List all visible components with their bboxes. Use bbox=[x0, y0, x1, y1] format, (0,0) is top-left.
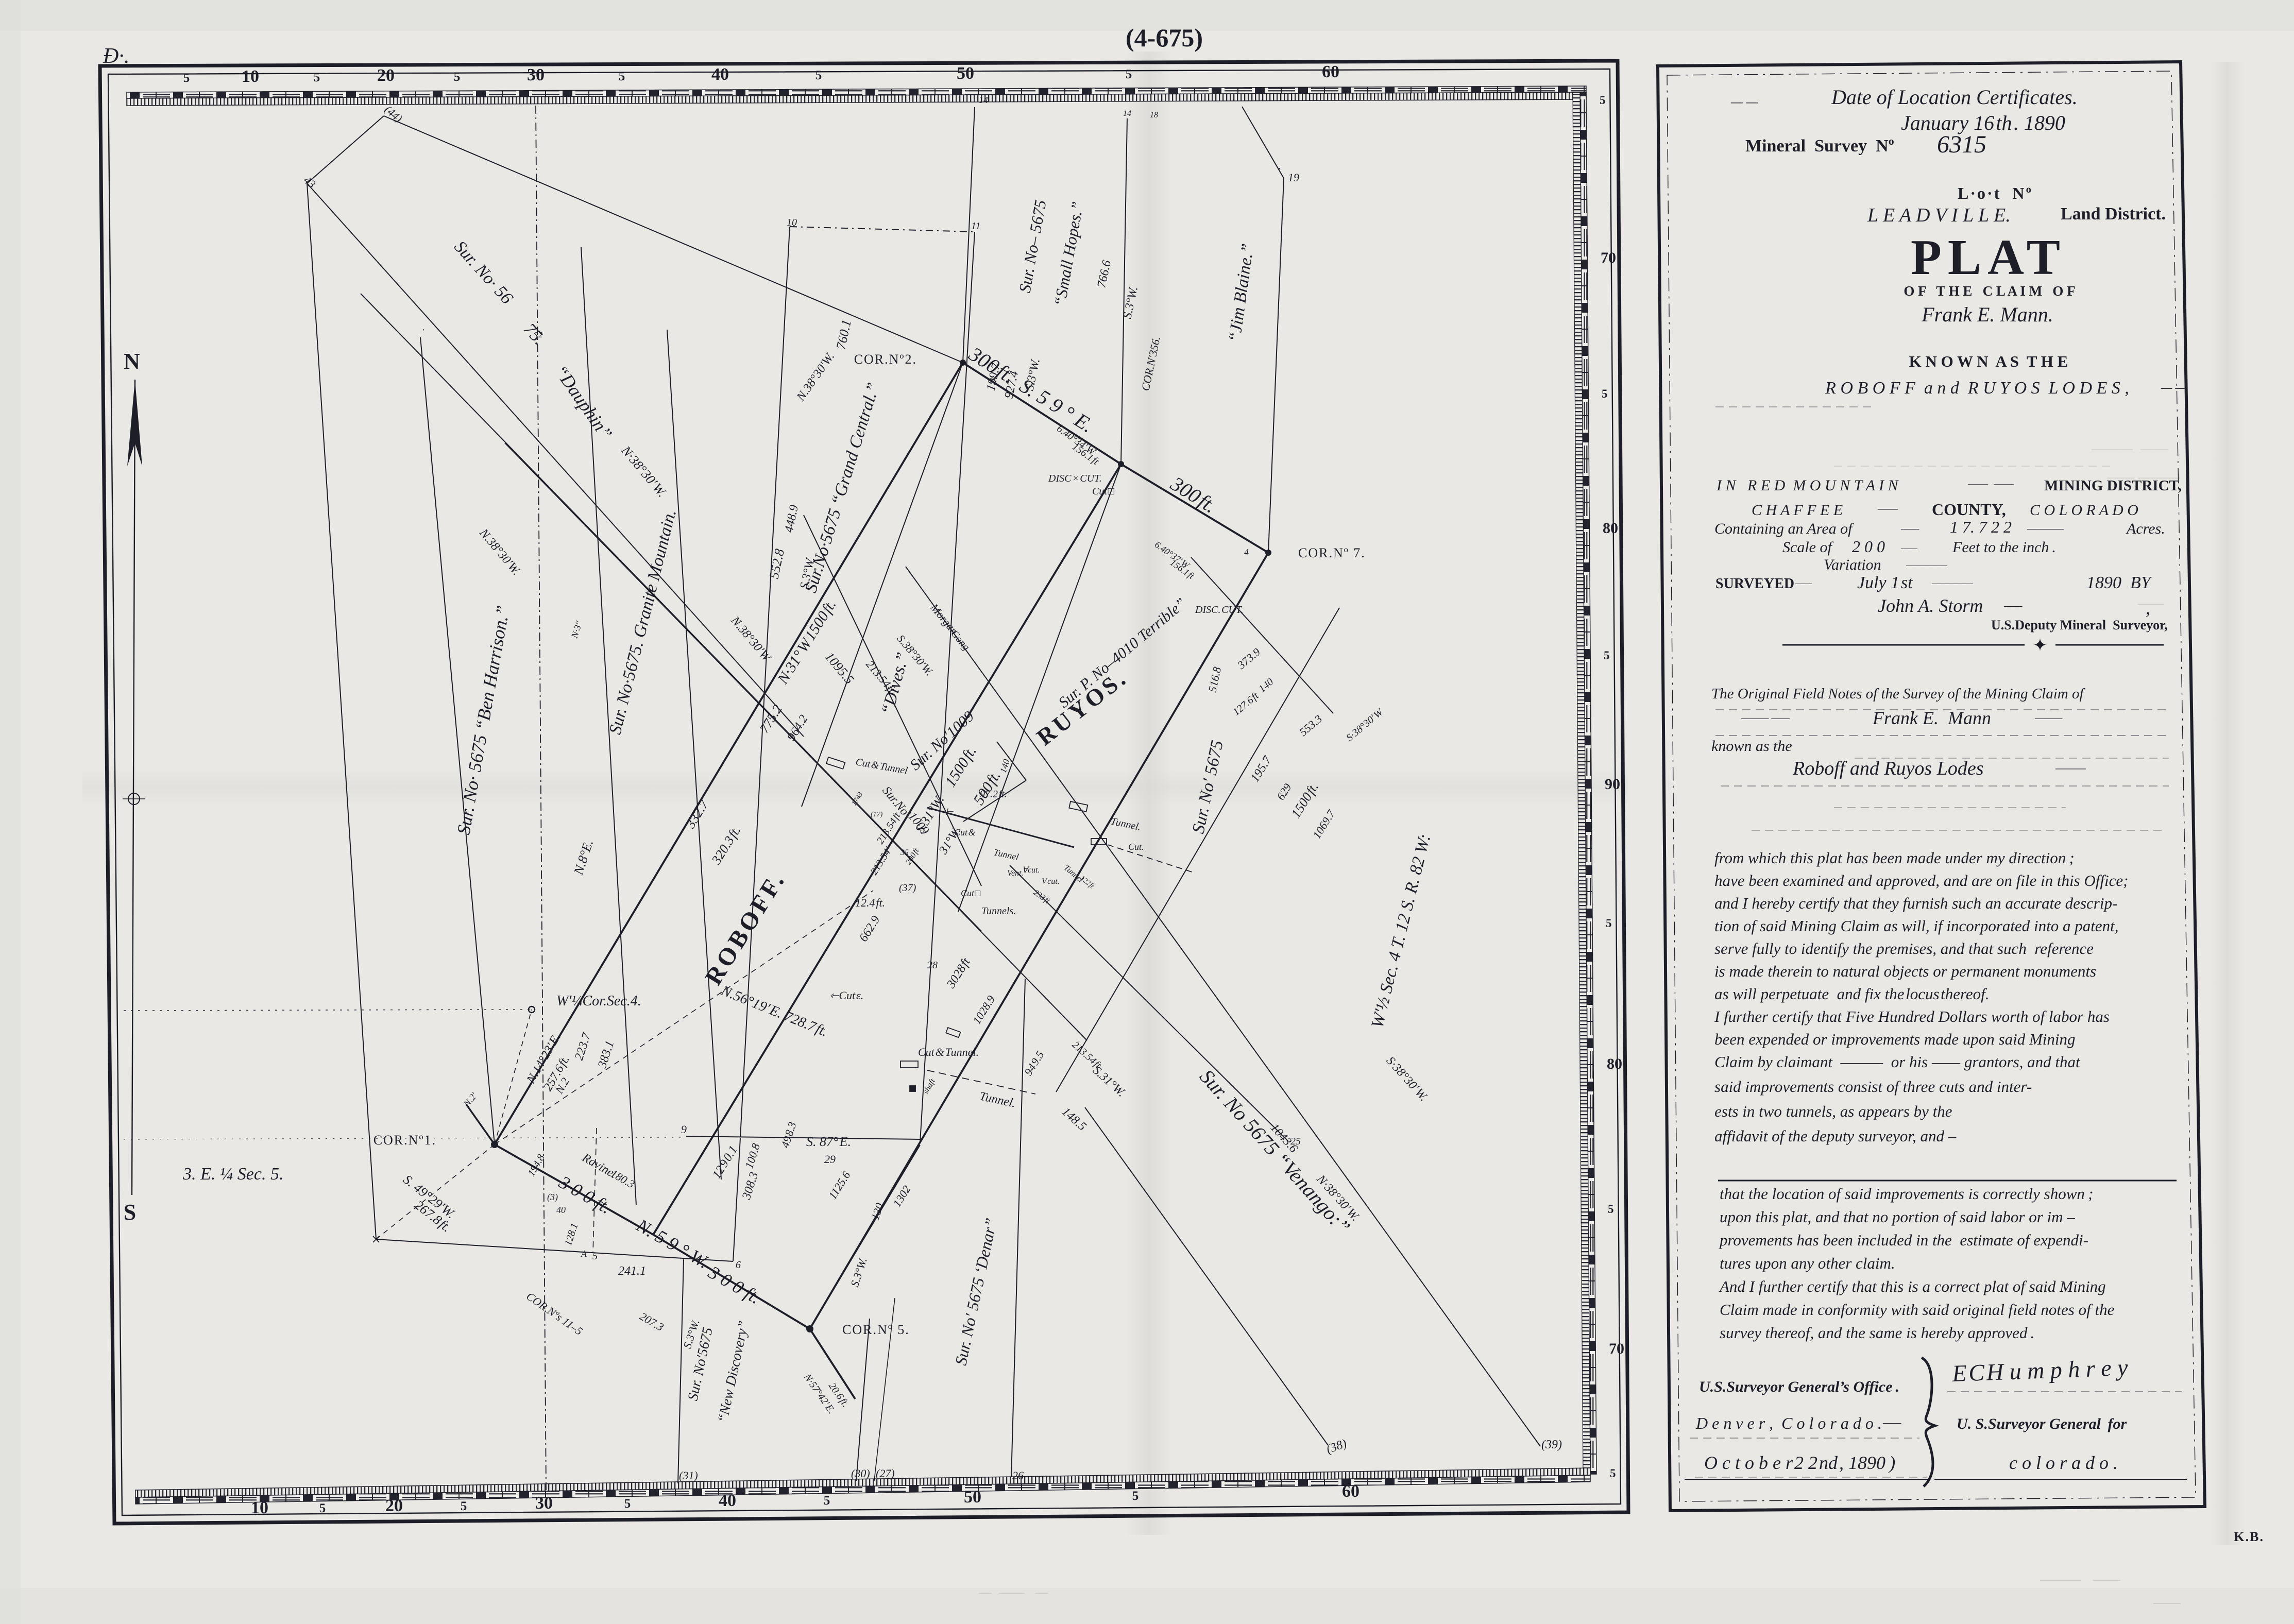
svg-text:2 0 0: 2 0 0 bbox=[1852, 537, 1885, 556]
svg-text:90: 90 bbox=[1605, 776, 1620, 793]
svg-text:——: —— bbox=[1900, 523, 1919, 534]
svg-text:——: —— bbox=[1900, 543, 1918, 553]
svg-text:1890 BY: 1890 BY bbox=[2086, 573, 2152, 592]
svg-text:O c t o b e r 2 2 nd , 1890 ): O c t o b e r 2 2 nd , 1890 ) bbox=[1704, 1452, 1895, 1473]
svg-text:60: 60 bbox=[1322, 62, 1339, 81]
svg-text:——: —— bbox=[1882, 1417, 1901, 1428]
svg-text:And I further certify that thi: And I further certify that this is a cor… bbox=[1719, 1277, 2106, 1295]
svg-text:19: 19 bbox=[1288, 171, 1299, 184]
svg-text:Roboff and Ruyos Lodes: Roboff and Ruyos Lodes bbox=[1792, 758, 1983, 779]
svg-text:′: ′ bbox=[1278, 166, 1280, 177]
svg-text:Claim by claimant ——— or his: Claim by claimant ——— or his —— grantors… bbox=[1714, 1053, 2081, 1071]
svg-text:(37): (37) bbox=[899, 882, 916, 894]
svg-text:———: ——— bbox=[2055, 761, 2086, 774]
svg-text:provements has been included i: provements has been included in the esti… bbox=[1719, 1231, 2088, 1249]
svg-text:12.4 ft.: 12.4 ft. bbox=[855, 896, 885, 909]
svg-text:50: 50 bbox=[957, 64, 974, 83]
svg-text:that the location of said impr: that the location of said improvements i… bbox=[1720, 1185, 2093, 1203]
svg-text:—————: ————— bbox=[1931, 578, 1974, 588]
svg-text:28: 28 bbox=[927, 960, 938, 971]
svg-text:I N R E D M O U N T A I N: I N R E D M O U N T A I N bbox=[1716, 477, 1899, 494]
svg-text:PLAT: PLAT bbox=[1911, 230, 2066, 285]
svg-text:COR.Nº2.: COR.Nº2. bbox=[854, 352, 917, 367]
svg-text:70: 70 bbox=[1601, 249, 1616, 266]
svg-text:4: 4 bbox=[1244, 547, 1249, 557]
svg-text:Tunnels.: Tunnels. bbox=[981, 905, 1016, 917]
svg-text:14: 14 bbox=[979, 95, 988, 105]
svg-text:20: 20 bbox=[377, 66, 395, 85]
svg-text:5: 5 bbox=[1610, 1467, 1616, 1480]
svg-text:— —: — — bbox=[1730, 94, 1759, 109]
svg-text:R O B O F F a n d R U Y O S: R O B O F F a n d R U Y O S L O D E S , bbox=[1825, 379, 2129, 398]
svg-text:30: 30 bbox=[535, 1494, 553, 1513]
svg-text:S. 87° E.: S. 87° E. bbox=[806, 1134, 851, 1149]
svg-text:COR.Nº 7.: COR.Nº 7. bbox=[1298, 545, 1366, 560]
svg-text:July 1 st: July 1 st bbox=[1857, 573, 1913, 592]
svg-text:——— ——: ——— —— bbox=[1741, 712, 1790, 724]
svg-text:Frank E. Mann.: Frank E. Mann. bbox=[1921, 303, 2053, 326]
svg-text:✦: ✦ bbox=[2033, 636, 2048, 655]
svg-text:29: 29 bbox=[824, 1153, 836, 1166]
svg-text:30: 30 bbox=[527, 65, 545, 84]
svg-text:241.1: 241.1 bbox=[618, 1264, 646, 1278]
svg-text:(4-675): (4-675) bbox=[1126, 23, 1203, 52]
svg-text:W′¼Cor.Sec.4.: W′¼Cor.Sec.4. bbox=[556, 993, 641, 1009]
svg-text:ests in two tunnels, as appear: ests in two tunnels, as appears by the bbox=[1714, 1102, 1952, 1120]
svg-text:5: 5 bbox=[461, 1499, 467, 1513]
svg-text:I further certify that Five Hu: I further certify that Five Hundred Doll… bbox=[1714, 1007, 2110, 1025]
svg-text:2: 2 bbox=[538, 331, 542, 339]
svg-text:————: ———— bbox=[2027, 523, 2064, 534]
svg-text:——: —— bbox=[2137, 595, 2164, 611]
svg-text:(31): (31) bbox=[679, 1469, 698, 1482]
svg-text:80: 80 bbox=[1607, 1055, 1622, 1072]
svg-text:tures upon any other claim.: tures upon any other claim. bbox=[1720, 1254, 1895, 1272]
svg-text:—— ——: —— —— bbox=[1967, 477, 2014, 490]
svg-text:COR.Nº1.: COR.Nº1. bbox=[373, 1133, 436, 1148]
svg-text:Cut □: Cut □ bbox=[961, 888, 981, 898]
svg-text:SURVEYED: SURVEYED bbox=[1715, 576, 1794, 592]
svg-text:(3): (3) bbox=[547, 1192, 558, 1203]
svg-text:affidavit of the deputy survey: affidavit of the deputy surveyor, and – bbox=[1714, 1127, 1957, 1145]
svg-text:U.S.Deputy Mineral Surveyor,: U.S.Deputy Mineral Surveyor, bbox=[1991, 618, 2168, 632]
svg-text:6: 6 bbox=[736, 1259, 741, 1271]
svg-text:Mineral Survey Nº: Mineral Survey Nº bbox=[1745, 136, 1894, 156]
svg-text:5: 5 bbox=[1604, 649, 1610, 662]
svg-text:is made therein to natural obj: is made therein to natural objects or pe… bbox=[1714, 962, 2096, 980]
svg-text:5: 5 bbox=[824, 1494, 830, 1508]
svg-text:1 7. 7 2 2: 1 7. 7 2 2 bbox=[1950, 518, 2012, 536]
svg-text:40: 40 bbox=[711, 65, 729, 84]
svg-text:Frank E. Mann: Frank E. Mann bbox=[1872, 708, 1991, 728]
svg-text:(30): (30) bbox=[851, 1467, 870, 1480]
svg-text:⇽Cut ε.: ⇽Cut ε. bbox=[829, 989, 863, 1002]
svg-text:tion of said Mining Claim as w: tion of said Mining Claim as will, if in… bbox=[1714, 917, 2119, 935]
svg-text:— —: — — bbox=[2161, 381, 2186, 395]
svg-text:——: —— bbox=[1877, 502, 1898, 515]
svg-text:as will perpetuate and fix th: as will perpetuate and fix the locus the… bbox=[1714, 985, 1990, 1003]
svg-text:—————: ————— bbox=[1906, 560, 1948, 570]
svg-text:3. E. ¼ Sec. 5.: 3. E. ¼ Sec. 5. bbox=[182, 1165, 283, 1184]
svg-text:Cut.: Cut. bbox=[1128, 842, 1144, 852]
svg-text:20: 20 bbox=[385, 1496, 403, 1515]
svg-text:COUNTY,: COUNTY, bbox=[1932, 500, 2006, 519]
svg-text:serve fully to identify the pr: serve fully to identify the premises, an… bbox=[1714, 939, 2094, 958]
svg-text:60: 60 bbox=[1342, 1482, 1360, 1501]
svg-text:70: 70 bbox=[1609, 1340, 1624, 1357]
svg-text:10: 10 bbox=[242, 67, 259, 86]
svg-text:said improvements consist of t: said improvements consist of three cuts … bbox=[1714, 1078, 2032, 1096]
svg-text:D e n v e r , C o l o r a d o: D e n v e r , C o l o r a d o . bbox=[1695, 1414, 1882, 1432]
svg-text:Land District.: Land District. bbox=[2061, 204, 2166, 224]
svg-text:from which this plat has been: from which this plat has been made under… bbox=[1714, 849, 2075, 867]
svg-text:10: 10 bbox=[251, 1498, 268, 1517]
svg-text:been expended or improvements: been expended or improvements made upon … bbox=[1714, 1030, 2076, 1048]
svg-text:have been examined and approve: have been examined and approved, and are… bbox=[1714, 871, 2129, 890]
svg-text:and I hereby certify that they: and I hereby certify that they furnish s… bbox=[1714, 894, 2117, 912]
svg-text:40: 40 bbox=[719, 1491, 736, 1510]
svg-text:L E A D V I L L E.: L E A D V I L L E. bbox=[1867, 204, 2011, 226]
svg-text:5: 5 bbox=[1600, 94, 1606, 107]
svg-text:U. S.Surveyor General for: U. S.Surveyor General for bbox=[1957, 1415, 2127, 1432]
svg-text:5: 5 bbox=[624, 1497, 631, 1511]
svg-text:K.B.: K.B. bbox=[2234, 1529, 2264, 1544]
svg-text:V cut.: V cut. bbox=[1042, 877, 1060, 886]
svg-text:Scale of: Scale of bbox=[1782, 539, 1833, 556]
svg-text:5: 5 bbox=[183, 71, 190, 85]
svg-text:S: S bbox=[124, 1200, 136, 1225]
svg-text:——: —— bbox=[2003, 600, 2023, 611]
svg-text:′: ′ bbox=[966, 349, 968, 357]
svg-text:C O L O R A D O: C O L O R A D O bbox=[2030, 502, 2138, 519]
svg-text:L·o·t Nº: L·o·t Nº bbox=[1958, 184, 2033, 202]
svg-text:John A. Storm: John A. Storm bbox=[1878, 595, 1983, 616]
svg-text:——— ——: ——— —— bbox=[2091, 440, 2168, 457]
svg-text:Cut □: Cut □ bbox=[1092, 486, 1114, 497]
svg-text:COR.Nº 5.: COR.Nº 5. bbox=[842, 1322, 910, 1337]
svg-text:11: 11 bbox=[971, 220, 981, 232]
svg-text:A: A bbox=[581, 1249, 587, 1259]
svg-text:5: 5 bbox=[319, 1501, 326, 1515]
svg-text:DISC. CUT.: DISC. CUT. bbox=[1195, 604, 1244, 616]
svg-text:5: 5 bbox=[314, 71, 320, 84]
svg-text:survey thereof, and the same i: survey thereof, and the same is hereby a… bbox=[1720, 1324, 2034, 1342]
svg-text:(27): (27) bbox=[876, 1467, 895, 1480]
svg-text:5: 5 bbox=[1608, 1203, 1614, 1216]
svg-text:O F T H E C L A I M O F: O F T H E C L A I M O F bbox=[1904, 283, 2075, 299]
svg-text:26: 26 bbox=[1012, 1469, 1024, 1482]
svg-text:Acres.: Acres. bbox=[2126, 520, 2165, 537]
svg-text:The Original Field Notes of th: The Original Field Notes of the Survey o… bbox=[1711, 686, 2085, 702]
svg-text:5: 5 bbox=[815, 69, 822, 82]
svg-text:10: 10 bbox=[787, 217, 797, 228]
svg-text:40: 40 bbox=[556, 1205, 566, 1215]
svg-text:,: , bbox=[2146, 597, 2150, 618]
svg-text:9: 9 bbox=[681, 1123, 687, 1136]
svg-text:⊢: ⊢ bbox=[945, 807, 954, 817]
svg-text:known as the: known as the bbox=[1711, 738, 1792, 755]
svg-text:5: 5 bbox=[1132, 1489, 1139, 1503]
svg-text:6315: 6315 bbox=[1937, 131, 1986, 158]
svg-text:———: ——— bbox=[2034, 712, 2063, 724]
svg-text:MINING DISTRICT,: MINING DISTRICT, bbox=[2044, 477, 2182, 494]
svg-text:5: 5 bbox=[619, 70, 625, 83]
svg-text:5: 5 bbox=[1602, 387, 1608, 400]
svg-text:Feet to the inch .: Feet to the inch . bbox=[1952, 539, 2056, 556]
svg-text:Cut &: Cut & bbox=[954, 827, 976, 837]
svg-text:— —— —: — —— — bbox=[978, 1584, 1049, 1600]
svg-text:50: 50 bbox=[964, 1488, 981, 1507]
svg-text:U.S.Surveyor General’s Office: U.S.Surveyor General’s Office . bbox=[1699, 1378, 1899, 1395]
svg-text:——: —— bbox=[2153, 1594, 2181, 1611]
svg-text:5: 5 bbox=[592, 1251, 598, 1262]
svg-text:5: 5 bbox=[1606, 917, 1612, 930]
svg-text:K N O W N A S T H E: K N O W N A S T H E bbox=[1909, 352, 2068, 370]
svg-text:80: 80 bbox=[1603, 520, 1618, 537]
svg-text:DISC × CUT.: DISC × CUT. bbox=[1048, 473, 1102, 484]
svg-text:Variation: Variation bbox=[1824, 556, 1881, 573]
svg-text:5: 5 bbox=[1126, 67, 1132, 81]
svg-text:(17): (17) bbox=[871, 811, 883, 818]
svg-text:Vent.: Vent. bbox=[1007, 869, 1024, 878]
svg-text:5: 5 bbox=[454, 70, 461, 84]
svg-text:Claim made in conformity with: Claim made in conformity with said origi… bbox=[1720, 1301, 2115, 1319]
svg-text:97.2 ft.: 97.2 ft. bbox=[980, 789, 1007, 800]
svg-text:Containing an Area of: Containing an Area of bbox=[1714, 520, 1854, 537]
svg-text:Date of Location Certificates.: Date of Location Certificates. bbox=[1831, 86, 2078, 109]
svg-text:Cut & Tunnel.: Cut & Tunnel. bbox=[918, 1046, 979, 1058]
svg-text:——: —— bbox=[1795, 578, 1812, 588]
svg-text:upon this plat, and that no po: upon this plat, and that no portion of s… bbox=[1720, 1208, 2075, 1226]
svg-text:(39): (39) bbox=[1541, 1438, 1562, 1451]
svg-text:14: 14 bbox=[1123, 109, 1131, 118]
svg-text:∀cut.: ∀cut. bbox=[1022, 866, 1040, 875]
svg-text:c o l o r a d o .: c o l o r a d o . bbox=[2009, 1452, 2118, 1473]
svg-text:N: N bbox=[124, 349, 140, 374]
svg-text:——— ——: ——— —— bbox=[2040, 1570, 2120, 1587]
svg-text:18: 18 bbox=[1150, 111, 1158, 119]
svg-text:C H A F F E E: C H A F F E E bbox=[1752, 502, 1843, 519]
